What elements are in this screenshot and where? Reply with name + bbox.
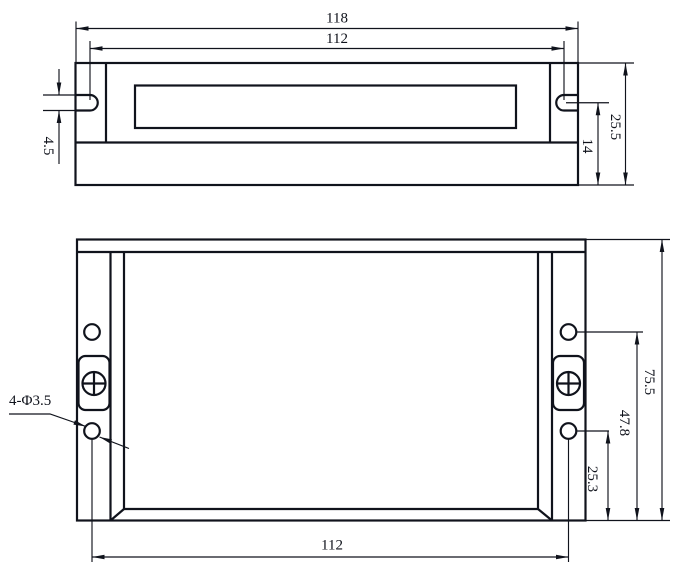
front-view: 75.5 47.8 25.3 112 4-Φ3.5 (9, 240, 670, 563)
dim-text-lower-hole-offset: 25.3 (584, 466, 600, 492)
front-view-labels: 75.5 47.8 25.3 112 4-Φ3.5 (9, 369, 657, 554)
technical-drawing: 118 112 4.5 14 25.5 (0, 0, 680, 570)
mount-hole-bottom-right (561, 423, 577, 439)
front-view-dimension-lines (9, 240, 670, 563)
profile-recessed-window (135, 86, 516, 129)
dim-text-overall-width: 118 (326, 11, 348, 27)
face-panel-chamfer-left (111, 509, 125, 521)
mount-hole-top-right (561, 324, 577, 340)
dim-text-slot-width: 4.5 (40, 137, 56, 156)
dim-text-slot-to-bottom: 14 (579, 139, 595, 155)
mounting-slot-left (76, 95, 98, 111)
dim-text-face-height: 75.5 (641, 369, 657, 395)
mount-hole-top-left (84, 324, 100, 340)
dim-text-profile-height: 25.5 (607, 114, 623, 140)
drawing-sheet: 118 112 4.5 14 25.5 (0, 0, 680, 570)
profile-outer-body (76, 63, 579, 185)
top-view-labels: 118 112 4.5 14 25.5 (40, 11, 623, 156)
dim-text-upper-hole-offset: 47.8 (616, 410, 632, 436)
face-panel-chamfer-right (538, 509, 552, 521)
top-view-outline (76, 63, 579, 185)
dim-text-slot-spacing: 112 (326, 31, 348, 47)
dim-text-hole-spacing: 112 (321, 538, 343, 554)
face-outer-body (77, 240, 586, 521)
callout-leader-line (9, 414, 86, 427)
mount-hole-bottom-left (84, 423, 100, 439)
front-view-outline (77, 240, 586, 521)
hole-callout-text: 4-Φ3.5 (9, 393, 51, 409)
top-view: 118 112 4.5 14 25.5 (40, 11, 634, 186)
